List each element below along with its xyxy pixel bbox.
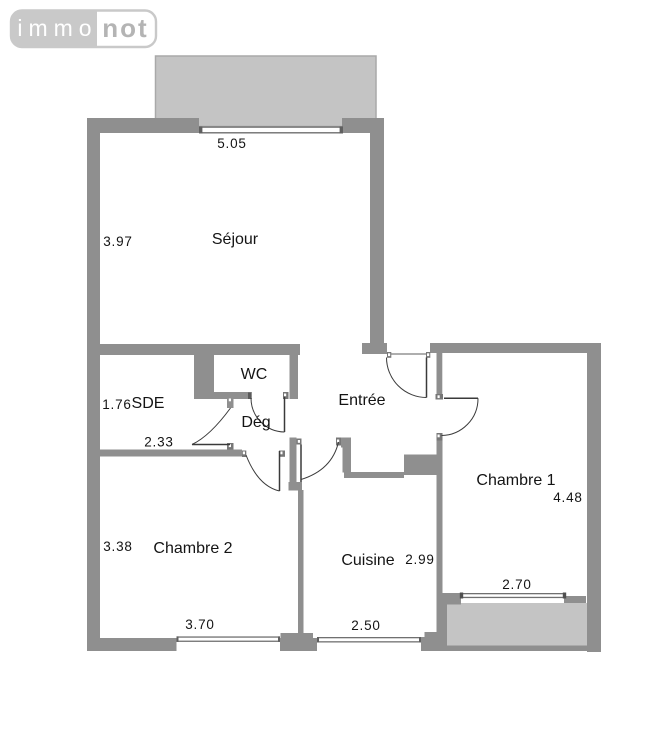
svg-text:2.99: 2.99 [405, 552, 434, 567]
svg-text:Séjour: Séjour [212, 231, 259, 248]
svg-text:3.70: 3.70 [185, 617, 214, 632]
svg-text:Dég: Dég [241, 414, 270, 431]
svg-text:immo: immo [17, 15, 97, 41]
svg-text:Entrée: Entrée [338, 392, 385, 409]
svg-text:4.48: 4.48 [553, 490, 582, 505]
svg-text:WC: WC [241, 366, 268, 383]
svg-text:SDE: SDE [132, 395, 165, 412]
svg-text:Cuisine: Cuisine [341, 552, 394, 569]
svg-text:2.50: 2.50 [351, 618, 380, 633]
svg-text:Chambre 2: Chambre 2 [153, 540, 232, 557]
svg-text:2.33: 2.33 [144, 435, 173, 450]
svg-text:not: not [102, 13, 148, 43]
svg-text:3.97: 3.97 [103, 234, 132, 249]
svg-text:5.05: 5.05 [217, 136, 246, 151]
svg-text:3.38: 3.38 [103, 539, 132, 554]
svg-text:Chambre 1: Chambre 1 [476, 472, 555, 489]
svg-text:2.70: 2.70 [502, 577, 531, 592]
svg-text:1.76: 1.76 [102, 397, 131, 412]
